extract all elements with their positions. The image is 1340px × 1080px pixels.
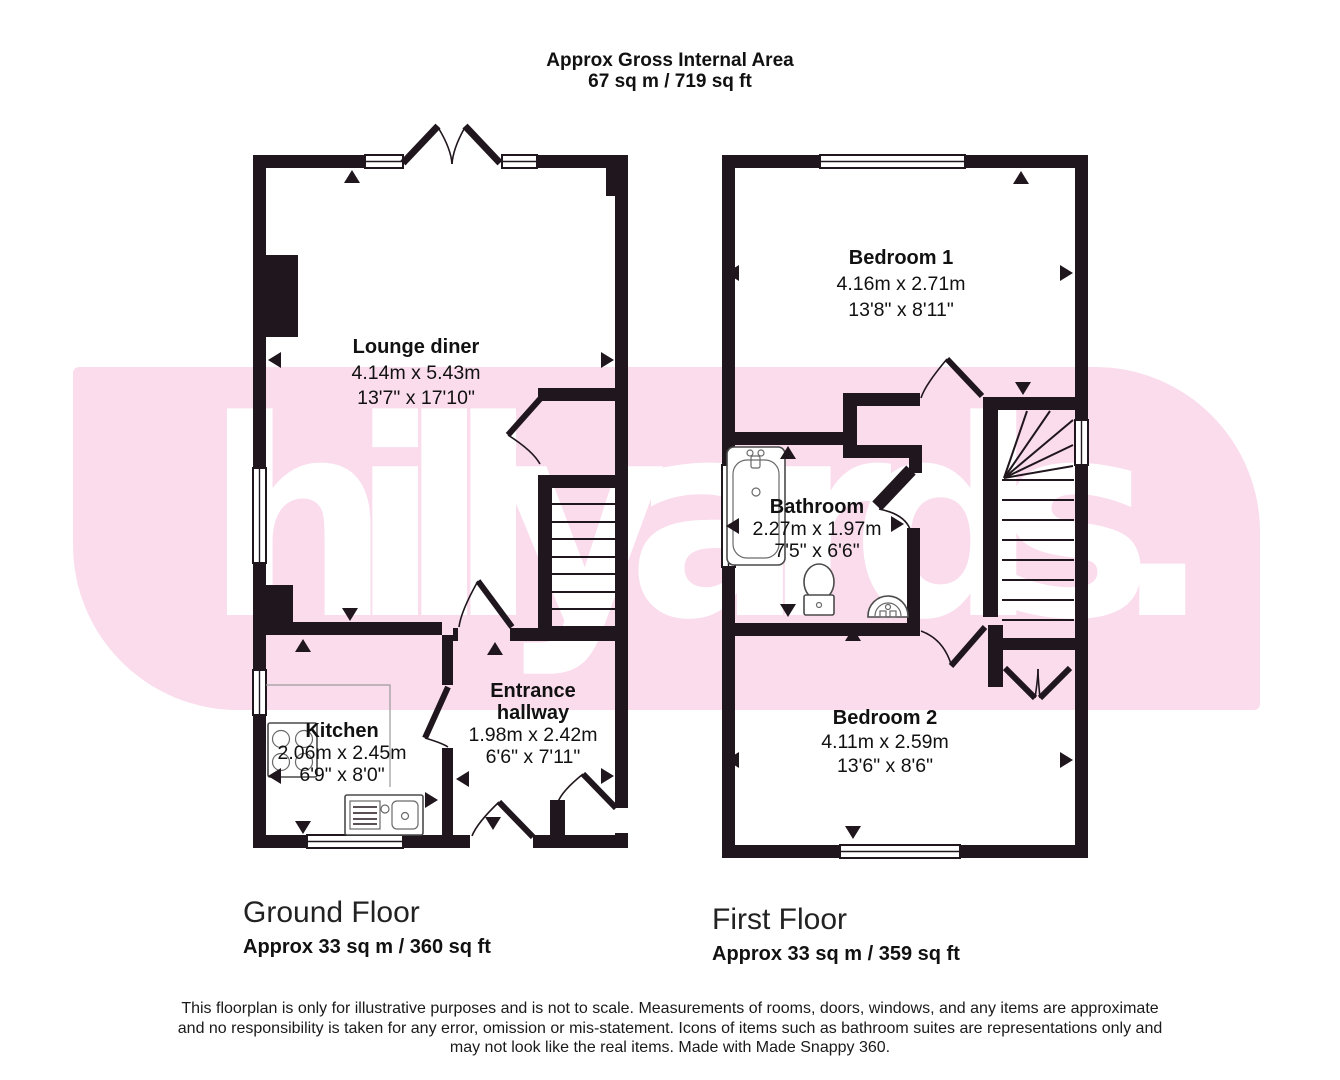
ground-floor-label: Ground Floor Approx 33 sq m / 360 sq ft [243, 896, 491, 959]
svg-text:Bathroom: Bathroom [770, 496, 864, 518]
stairs-ground [552, 487, 615, 627]
stairs-first [1002, 411, 1074, 640]
floorplan-first: Bedroom 1 4.16m x 2.71m 13'8" x 8'11" Ba… [705, 140, 1095, 865]
chimney-breast [253, 255, 298, 337]
basin-icon [868, 596, 908, 617]
window [365, 155, 403, 168]
svg-text:4.14m x 5.43m: 4.14m x 5.43m [352, 362, 481, 384]
window [840, 845, 960, 858]
window [253, 468, 266, 563]
total-area: 67 sq m / 719 sq ft [0, 71, 1340, 92]
disclaimer-line2: and no responsibility is taken for any e… [0, 1019, 1340, 1039]
svg-text:6'9" x 8'0": 6'9" x 8'0" [299, 764, 384, 786]
window [253, 670, 266, 715]
room-label-lounge-diner: Lounge diner 4.14m x 5.43m 13'7" x 17'10… [352, 336, 481, 409]
ground-floor-area: Approx 33 sq m / 360 sq ft [243, 936, 491, 959]
first-floor-label: First Floor Approx 33 sq m / 359 sq ft [712, 903, 960, 966]
door-bedroom1 [921, 359, 982, 398]
disclaimer-line1: This floorplan is only for illustrative … [0, 999, 1340, 1019]
disclaimer-line3: may not look like the real items. Made w… [0, 1038, 1340, 1058]
window [307, 835, 403, 848]
svg-text:6'6" x 7'11": 6'6" x 7'11" [486, 746, 581, 768]
door-front [472, 802, 533, 837]
window [1075, 420, 1088, 465]
svg-text:hallway: hallway [497, 702, 570, 724]
svg-text:Entrance: Entrance [490, 680, 576, 702]
svg-text:13'6" x 8'6": 13'6" x 8'6" [837, 755, 933, 777]
floorplan-ground: Lounge diner 4.14m x 5.43m 13'7" x 17'10… [250, 113, 635, 858]
svg-text:Bedroom 2: Bedroom 2 [833, 707, 937, 729]
closet-double-doors [1005, 668, 1070, 698]
window [820, 155, 965, 168]
window [502, 155, 537, 168]
svg-text:4.16m x 2.71m: 4.16m x 2.71m [837, 273, 966, 295]
door-bedroom2 [921, 627, 985, 666]
bay-window-doors [403, 126, 500, 164]
header: Approx Gross Internal Area 67 sq m / 719… [0, 50, 1340, 92]
first-floor-name: First Floor [712, 903, 960, 937]
svg-text:2.06m x 2.45m: 2.06m x 2.45m [278, 742, 407, 764]
svg-text:2.27m x 1.97m: 2.27m x 1.97m [753, 518, 882, 540]
first-floor-area: Approx 33 sq m / 359 sq ft [712, 943, 960, 966]
wall-stub [253, 585, 293, 622]
door-hallway-lounge [459, 581, 512, 627]
svg-text:13'7" x 17'10": 13'7" x 17'10" [357, 387, 475, 409]
svg-text:Lounge diner: Lounge diner [353, 336, 480, 358]
svg-text:13'8" x 8'11": 13'8" x 8'11" [848, 299, 954, 321]
svg-text:4.11m x 2.59m: 4.11m x 2.59m [821, 731, 949, 753]
room-label-bedroom1: Bedroom 1 4.16m x 2.71m 13'8" x 8'11" [837, 247, 966, 321]
room-label-entrance-hallway: Entrance hallway 1.98m x 2.42m 6'6" x 7'… [469, 680, 598, 768]
room-label-bedroom2: Bedroom 2 4.11m x 2.59m 13'6" x 8'6" [821, 707, 949, 777]
door-understairs [508, 399, 540, 464]
ground-doors [425, 399, 616, 837]
svg-text:1.98m x 2.42m: 1.98m x 2.42m [469, 724, 598, 746]
ground-floor-name: Ground Floor [243, 896, 491, 930]
svg-text:Bedroom 1: Bedroom 1 [849, 247, 953, 269]
disclaimer: This floorplan is only for illustrative … [0, 999, 1340, 1058]
toilet-icon [804, 564, 834, 615]
svg-text:Kitchen: Kitchen [305, 720, 378, 742]
svg-text:7'5" x 6'6": 7'5" x 6'6" [774, 540, 859, 562]
angled-wall [877, 470, 911, 506]
page-title: Approx Gross Internal Area [0, 50, 1340, 71]
door-kitchen [425, 687, 448, 747]
sink-icon [345, 795, 423, 835]
